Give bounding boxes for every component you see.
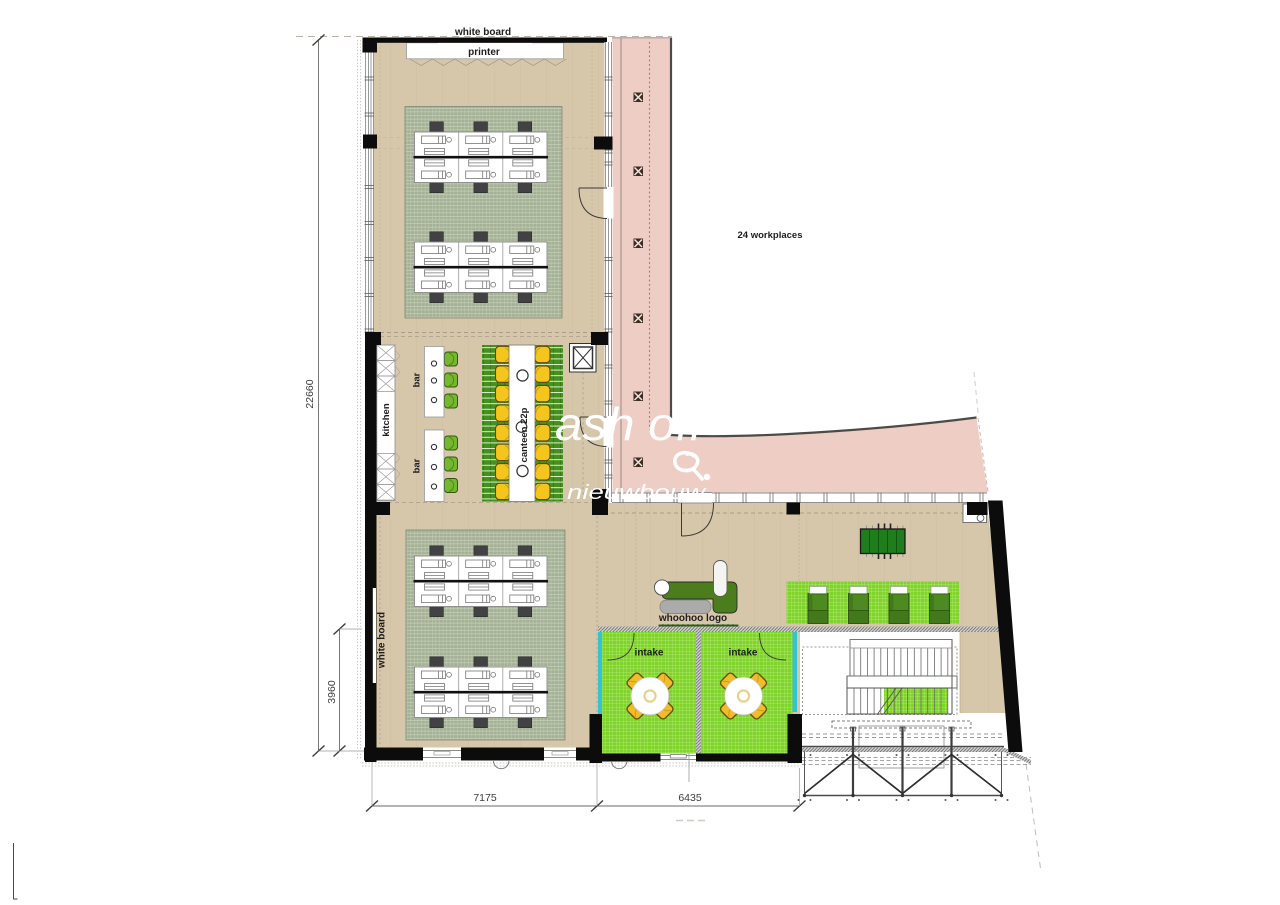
svg-text:white board: white board — [454, 27, 511, 38]
svg-text:ash off: ash off — [555, 398, 708, 450]
svg-text:nieuwbouw: nieuwbouw — [567, 482, 707, 504]
svg-text:6435: 6435 — [678, 792, 702, 804]
svg-text:22: 22 — [851, 746, 857, 752]
svg-text:bar: bar — [412, 372, 423, 387]
svg-text:intake: intake — [729, 648, 758, 659]
svg-text:24 workplaces: 24 workplaces — [738, 230, 803, 241]
svg-text:intake: intake — [635, 648, 664, 659]
svg-text:white board: white board — [377, 612, 388, 669]
svg-text:canteen 22p: canteen 22p — [519, 407, 530, 462]
svg-text:3960: 3960 — [326, 680, 338, 704]
svg-text:whoohoo logo: whoohoo logo — [658, 613, 727, 624]
svg-text:printer: printer — [468, 47, 500, 58]
svg-text:bar: bar — [412, 458, 423, 473]
svg-text:7175: 7175 — [473, 792, 497, 804]
svg-text:kitchen: kitchen — [381, 403, 392, 436]
svg-text:22660: 22660 — [304, 379, 316, 408]
